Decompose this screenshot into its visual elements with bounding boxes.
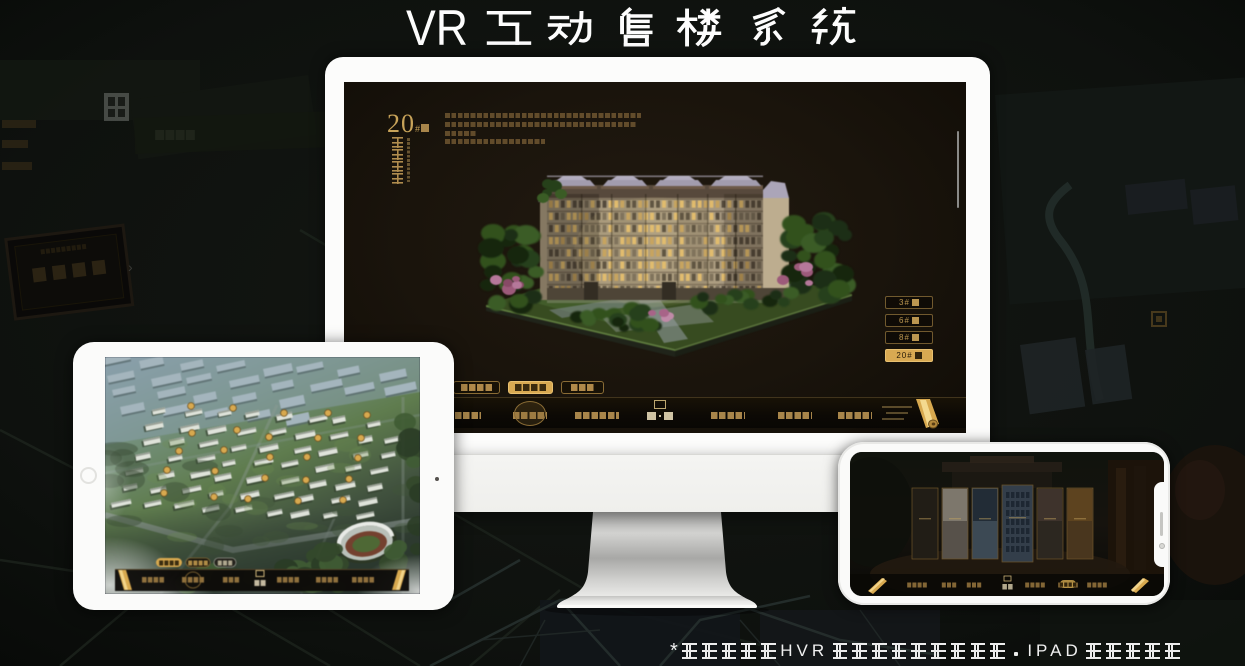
svg-text:VR: VR [406, 0, 468, 56]
svg-text:›: › [128, 259, 133, 275]
